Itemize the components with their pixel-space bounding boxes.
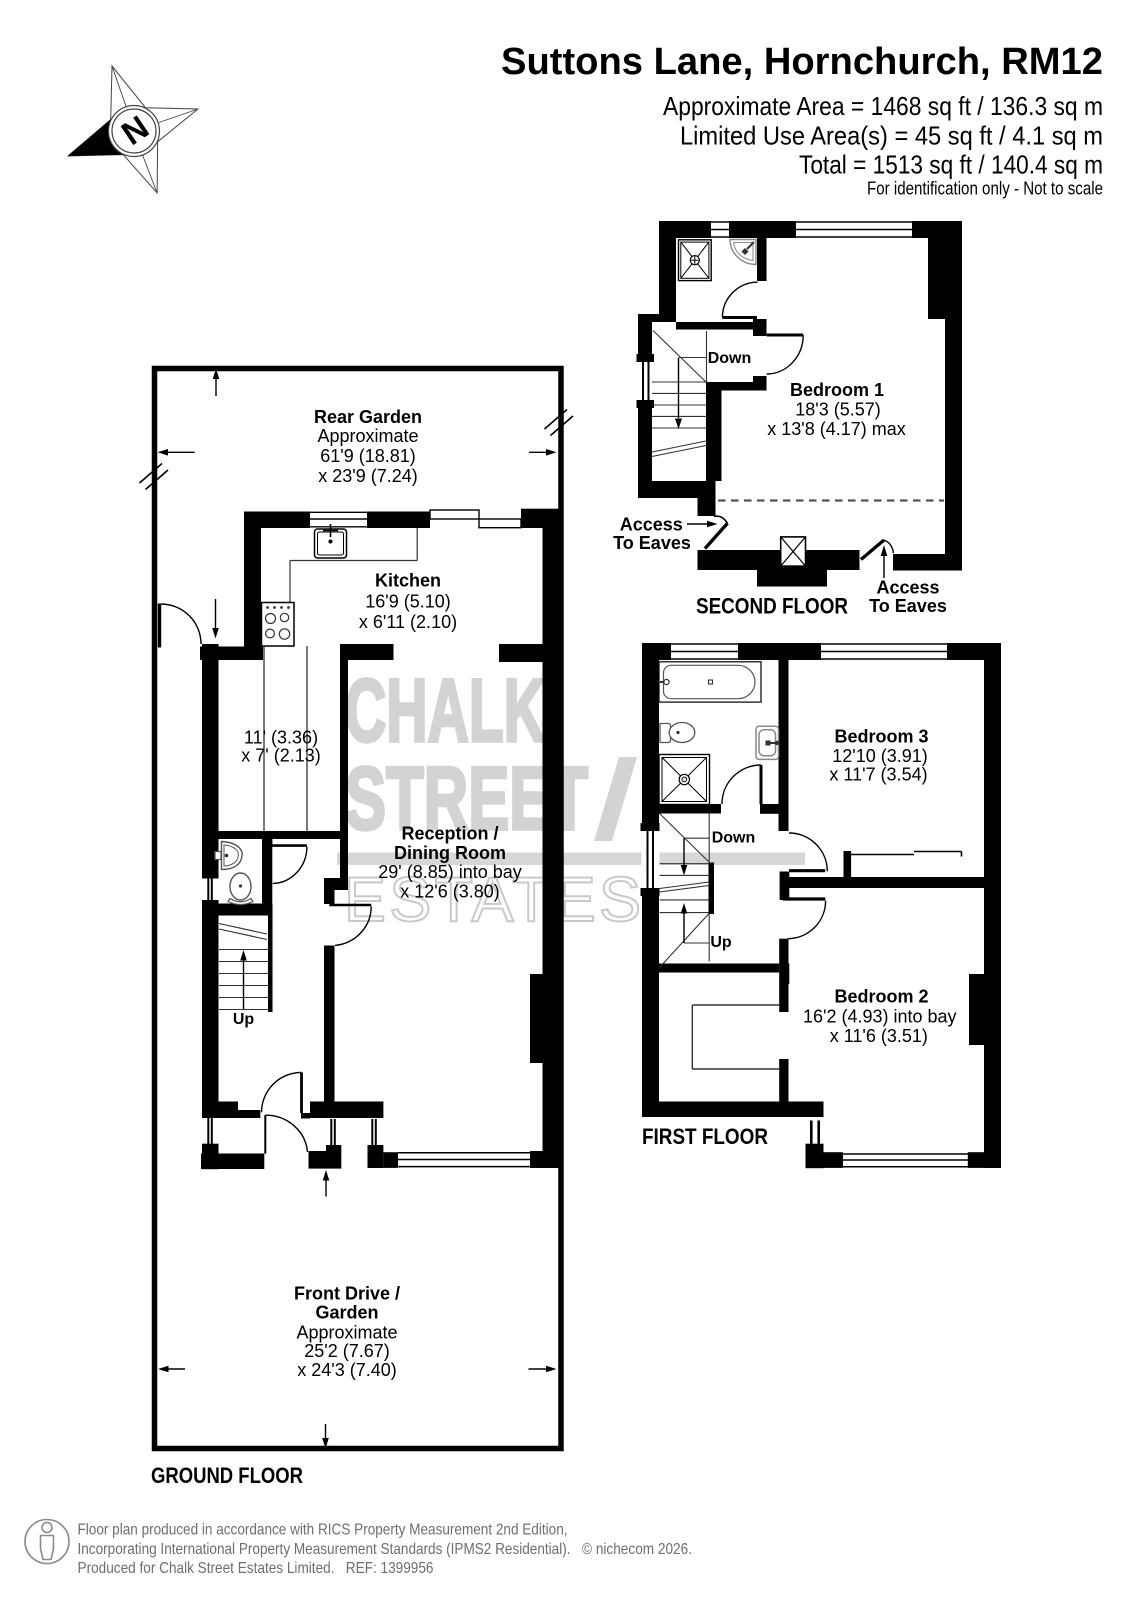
svg-text:x 11'6 (3.51): x 11'6 (3.51) [830,1026,928,1046]
svg-text:Produced for Chalk Street Esta: Produced for Chalk Street Estates Limite… [78,1560,434,1577]
svg-text:16'2 (4.93) into bay: 16'2 (4.93) into bay [803,1006,957,1026]
svg-text:12'10 (3.91): 12'10 (3.91) [832,746,928,766]
svg-text:x 13'8 (4.17) max: x 13'8 (4.17) max [767,419,906,439]
svg-text:Suttons Lane, Hornchurch, RM12: Suttons Lane, Hornchurch, RM12 [501,41,1103,83]
svg-text:GROUND FLOOR: GROUND FLOOR [151,1463,303,1488]
svg-text:Access: Access [620,514,683,534]
svg-text:16'9 (5.10): 16'9 (5.10) [365,592,451,612]
svg-text:Down: Down [708,350,752,367]
svg-text:x 6'11 (2.10): x 6'11 (2.10) [359,612,457,632]
svg-text:Down: Down [712,830,756,847]
svg-text:For identification only - Not: For identification only - Not to scale [867,179,1103,199]
svg-text:x 24'3 (7.40): x 24'3 (7.40) [297,1360,397,1380]
svg-text:Reception /: Reception / [401,824,498,844]
svg-text:To Eaves: To Eaves [869,596,947,616]
svg-text:x 11'7 (3.54): x 11'7 (3.54) [829,765,927,785]
svg-text:29' (8.85) into bay: 29' (8.85) into bay [378,862,522,882]
svg-text:Bedroom 3: Bedroom 3 [834,727,928,747]
svg-text:Garden: Garden [315,1302,378,1322]
svg-text:61'9 (18.81): 61'9 (18.81) [320,446,416,466]
svg-text:Approximate: Approximate [317,426,418,446]
svg-text:Approximate Area = 1468 sq ft: Approximate Area = 1468 sq ft / 136.3 sq… [663,91,1103,121]
svg-text:Access: Access [876,578,939,598]
svg-text:x 23'9 (7.24): x 23'9 (7.24) [318,466,418,486]
svg-text:SECOND FLOOR: SECOND FLOOR [696,594,848,619]
svg-text:Up: Up [233,1011,255,1028]
svg-text:Approximate: Approximate [296,1322,397,1342]
svg-text:Rear Garden: Rear Garden [314,407,422,427]
svg-text:Up: Up [710,934,732,951]
svg-text:x 12'6 (3.80): x 12'6 (3.80) [400,881,500,901]
svg-text:11' (3.36): 11' (3.36) [244,728,318,748]
svg-text:CHALK: CHALK [345,660,545,760]
svg-text:18'3 (5.57): 18'3 (5.57) [795,399,881,419]
svg-text:Total = 1513 sq ft / 140.4 sq: Total = 1513 sq ft / 140.4 sq m [799,150,1103,180]
svg-text:25'2 (7.67): 25'2 (7.67) [304,1341,390,1361]
svg-text:© nichecom 2026.: © nichecom 2026. [582,1541,692,1558]
svg-text:Bedroom 2: Bedroom 2 [834,987,928,1007]
svg-text:x 7' (2.13): x 7' (2.13) [241,746,320,766]
svg-text:Dining Room: Dining Room [394,843,506,863]
svg-text:Limited Use Area(s) = 45 sq ft: Limited Use Area(s) = 45 sq ft / 4.1 sq … [680,121,1103,151]
svg-text:To Eaves: To Eaves [613,533,691,553]
svg-text:FIRST FLOOR: FIRST FLOOR [642,1124,768,1149]
svg-text:Front Drive /: Front Drive / [294,1284,400,1304]
svg-text:Bedroom 1: Bedroom 1 [790,380,884,400]
svg-text:Floor plan produced in accorda: Floor plan produced in accordance with R… [78,1522,568,1539]
svg-text:Kitchen: Kitchen [375,571,441,591]
svg-text:Incorporating International Pr: Incorporating International Property Mea… [78,1541,571,1558]
